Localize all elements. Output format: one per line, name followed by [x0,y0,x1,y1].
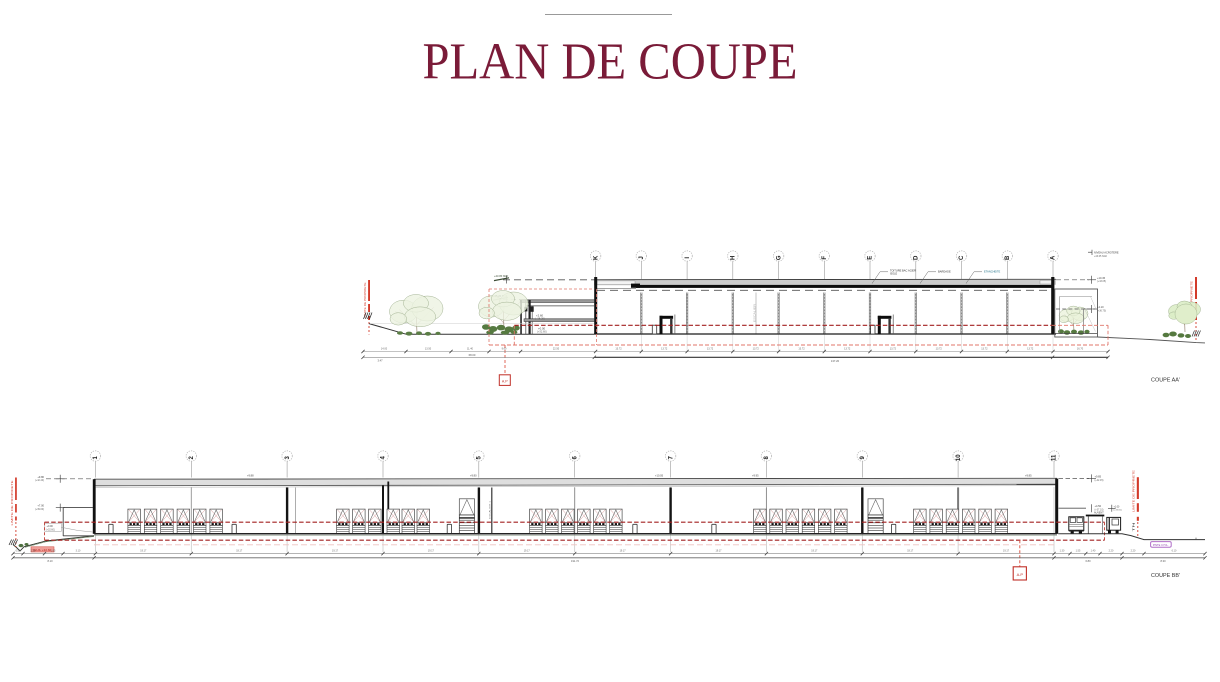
svg-text:+43.05 NGF: +43.05 NGF [494,274,509,278]
svg-text:19.17: 19.17 [524,550,531,553]
svg-text:6.80: 6.80 [1085,559,1091,563]
svg-text:13.72: 13.72 [661,348,668,351]
svg-text:+0.00: +0.00 [47,525,54,528]
svg-text:1.85: 1.85 [51,550,56,553]
svg-text:+1.00: +1.00 [1114,506,1121,508]
svg-text:0.50: 0.50 [16,550,21,553]
svg-text:9.60: 9.60 [502,348,507,351]
svg-text:A.P: A.P [1017,572,1024,577]
svg-text:+7.00: +7.00 [37,504,44,508]
svg-text:+9.80: +9.80 [470,473,477,477]
svg-text:(+43.05): (+43.05) [1097,280,1106,283]
svg-text:19.17: 19.17 [907,550,914,553]
svg-text:14.00: 14.00 [381,348,388,351]
svg-text:H: H [731,256,737,260]
svg-text:19.17: 19.17 [620,550,627,553]
svg-text:8.30: 8.30 [1160,559,1166,563]
svg-text:F: F [822,256,828,260]
svg-text:13.72: 13.72 [844,348,851,351]
svg-text:13.50: 13.50 [425,348,432,351]
svg-text:8.10: 8.10 [47,559,53,563]
svg-text:(+32.60): (+32.60) [537,330,547,334]
svg-text:6.10: 6.10 [1172,550,1177,553]
svg-text:3.10: 3.10 [76,550,81,553]
svg-text:13.72: 13.72 [1027,348,1034,351]
svg-text:2.15: 2.15 [31,550,36,553]
svg-text:19.17: 19.17 [236,550,243,553]
svg-text:2.20: 2.20 [1109,550,1114,553]
svg-text:(+33.60): (+33.60) [1114,510,1122,512]
svg-text:(+39.60): (+39.60) [35,508,44,511]
svg-text:ISOLE: ISOLE [890,273,897,276]
svg-text:(+42.45): (+42.45) [1095,479,1104,482]
svg-text:10: 10 [956,454,962,461]
svg-text:11.40: 11.40 [467,348,474,351]
svg-text:13.72: 13.72 [615,348,622,351]
svg-text:A.P: A.P [502,379,508,383]
svg-text:+9.88: +9.88 [247,473,254,477]
svg-text:1.30: 1.30 [1060,550,1065,553]
svg-text:11: 11 [1052,454,1058,461]
svg-text:ESCALIER 1: ESCALIER 1 [489,500,492,519]
svg-text:ETANCHEITE: ETANCHEITE [984,269,1001,273]
svg-text:G: G [776,255,782,260]
svg-text:+10.45: +10.45 [1097,276,1106,280]
svg-text:+9.80: +9.80 [37,475,44,479]
svg-text:+4.10: +4.10 [1097,305,1104,309]
svg-text:K: K [593,255,599,260]
svg-text:1.55: 1.55 [1076,550,1081,553]
svg-text:22.50: 22.50 [553,348,560,351]
svg-text:+9.85: +9.85 [1025,473,1032,477]
svg-text:LIMITE DE PROPRIETE: LIMITE DE PROPRIETE [363,282,367,317]
svg-text:3.47: 3.47 [377,358,383,362]
svg-text:+10.05: +10.05 [655,473,664,477]
svg-text:19.17: 19.17 [1003,550,1010,553]
svg-text:COUPE AA': COUPE AA' [1151,378,1180,384]
svg-text:(+36.70): (+36.70) [1097,310,1106,313]
svg-text:BARDAGE: BARDAGE [938,270,951,274]
svg-text:13.72: 13.72 [753,348,760,351]
svg-text:68.00: 68.00 [469,353,476,357]
svg-text:19.17: 19.17 [716,550,723,553]
svg-text:+43.05 NGF: +43.05 NGF [1094,255,1108,258]
svg-text:19.17: 19.17 [811,550,818,553]
svg-text:NIVEAU ACROTERE: NIVEAU ACROTERE [1094,251,1119,255]
svg-text:B: B [1005,255,1011,260]
svg-text:+9.95: +9.95 [752,473,759,477]
svg-text:16.70: 16.70 [1077,348,1084,351]
svg-text:13.72: 13.72 [936,348,943,351]
svg-text:SEUIL +32.60: SEUIL +32.60 [33,548,52,552]
svg-text:PLAN DE COUPE: PLAN DE COUPE [423,34,798,91]
svg-text:+9.85: +9.85 [1095,474,1102,478]
svg-text:COUPE BB': COUPE BB' [1151,573,1180,579]
svg-text:13.72: 13.72 [798,348,805,351]
svg-text:D: D [914,255,920,260]
svg-text:E: E [868,256,874,260]
svg-text:19.17: 19.17 [140,550,147,553]
svg-text:13.72: 13.72 [981,348,988,351]
svg-text:PISTE CYCL.: PISTE CYCL. [1153,543,1169,547]
svg-text:TN: TN [1133,522,1136,532]
svg-text:C: C [959,255,965,260]
svg-text:191.72: 191.72 [571,559,579,563]
svg-text:13.72: 13.72 [890,348,897,351]
svg-text:13.72: 13.72 [707,348,714,351]
svg-text:LIMITE DE PROPRIETE: LIMITE DE PROPRIETE [10,480,14,525]
svg-text:LIMITE DE PROPRIETE: LIMITE DE PROPRIETE [1132,470,1136,512]
svg-text:19.17: 19.17 [428,550,435,553]
svg-text:1.40: 1.40 [1091,550,1096,553]
svg-text:19.17: 19.17 [332,550,339,553]
svg-text:A: A [1051,255,1057,260]
svg-text:ESCALIER: ESCALIER [753,304,756,322]
svg-text:137.20: 137.20 [831,359,840,363]
svg-text:J: J [639,256,645,259]
svg-text:+4.50: +4.50 [1095,504,1102,508]
svg-text:(+35.20): (+35.20) [535,317,545,321]
svg-text:(+42.40): (+42.40) [35,479,44,482]
svg-text:2.20: 2.20 [1131,550,1136,553]
svg-text:(+32.60): (+32.60) [46,529,55,532]
svg-text:AUVENT: AUVENT [1094,511,1104,514]
